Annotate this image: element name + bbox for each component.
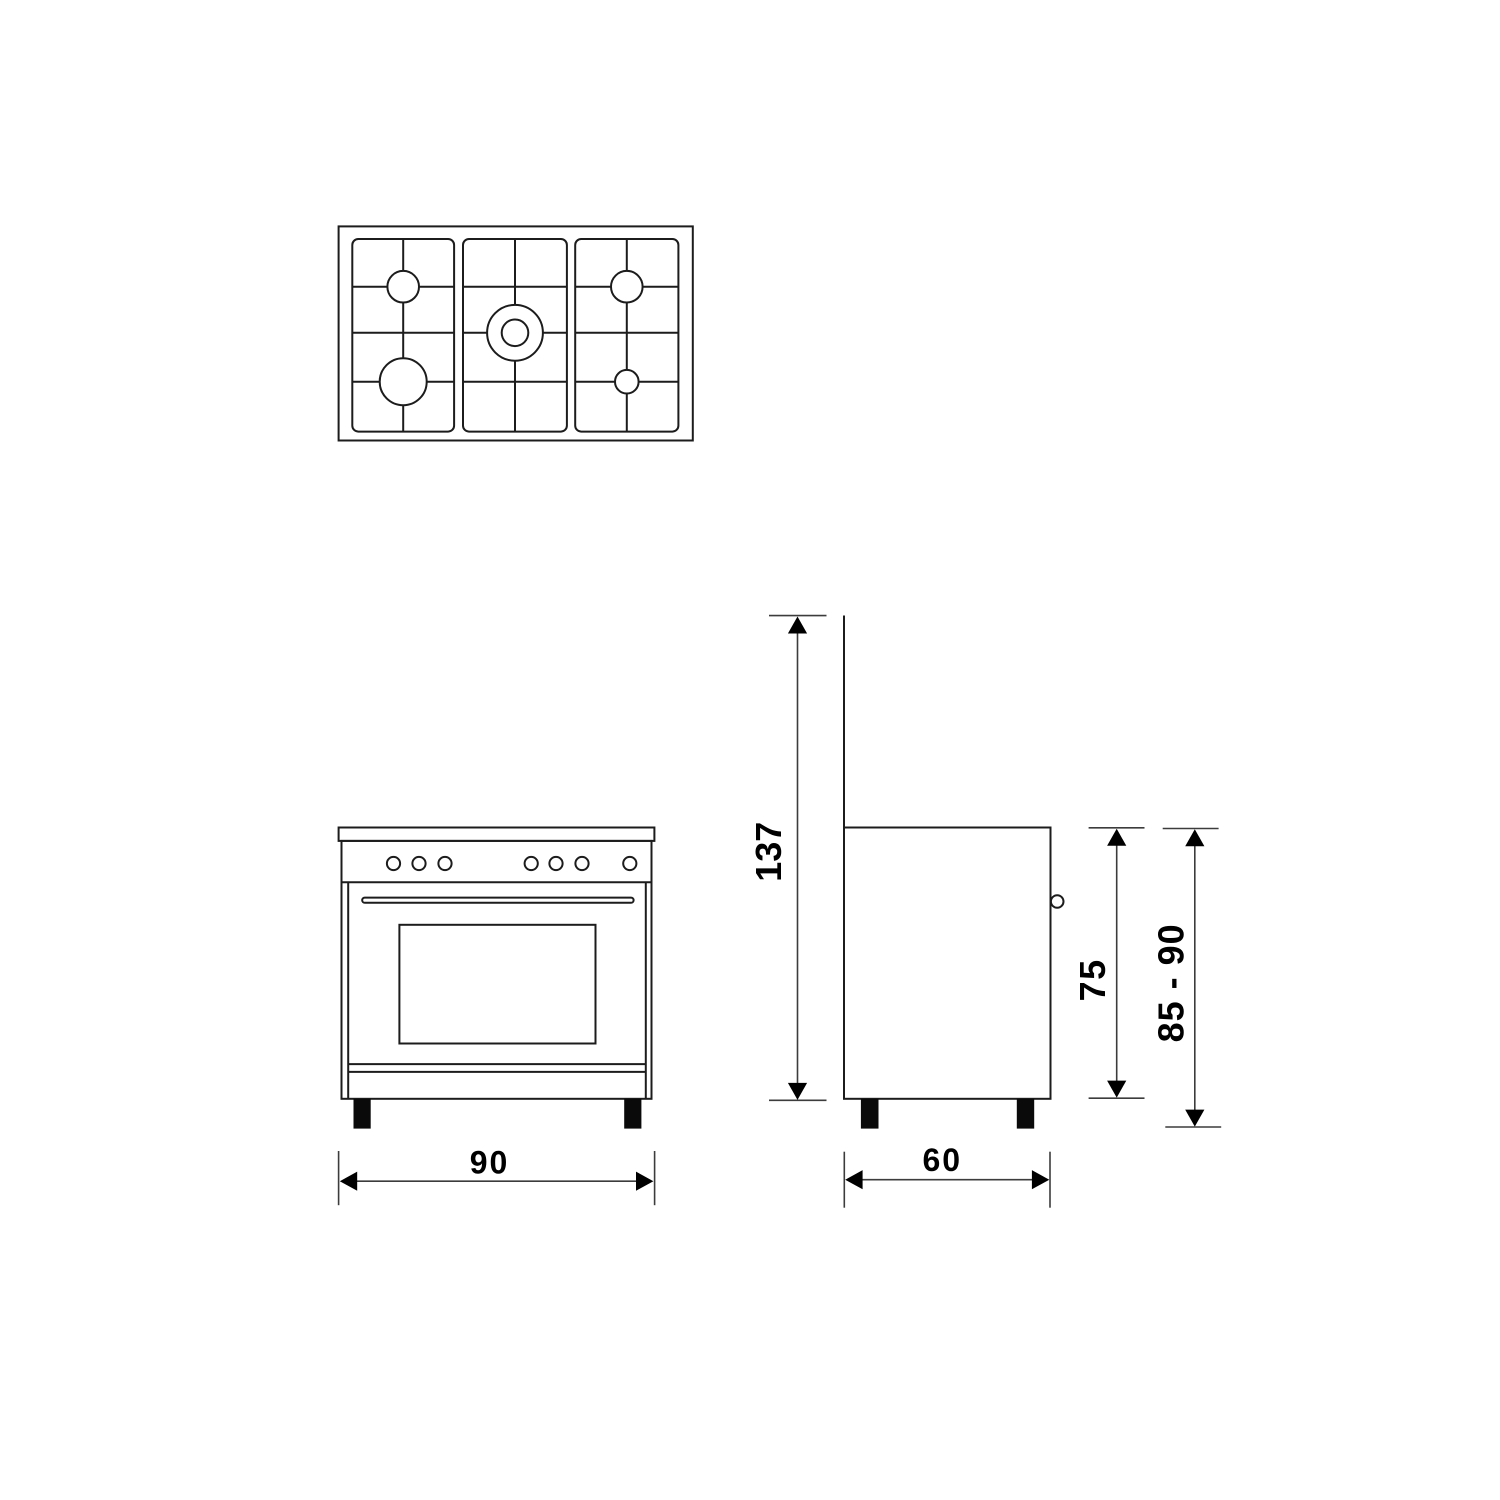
svg-text:60: 60: [923, 1142, 963, 1178]
svg-text:85 - 90: 85 - 90: [1151, 923, 1192, 1042]
svg-text:90: 90: [470, 1144, 510, 1180]
svg-text:75: 75: [1072, 958, 1113, 1001]
svg-text:137: 137: [748, 822, 789, 882]
